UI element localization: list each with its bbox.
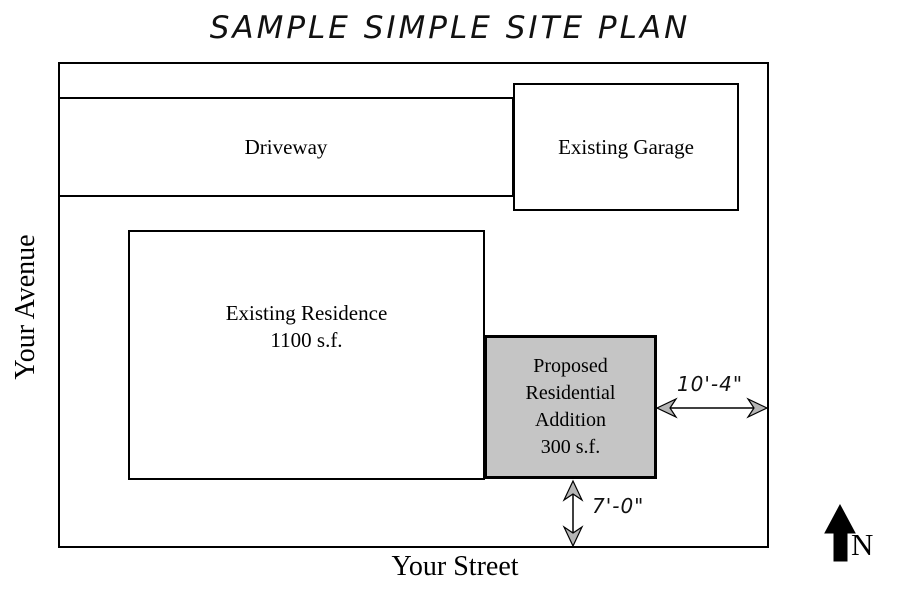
existing-garage-label: Existing Garage	[558, 134, 694, 161]
street-name-bottom: Your Street	[305, 551, 605, 587]
proposed-addition-label-line2: Residential	[526, 380, 616, 407]
dimension-right-setback-label: 10'-4"	[660, 372, 760, 396]
proposed-addition-label-line1: Proposed	[533, 353, 607, 380]
proposed-addition-box: Proposed Residential Addition 300 s.f.	[484, 335, 657, 479]
north-label: N	[851, 527, 873, 563]
existing-residence-label-line2: 1100 s.f.	[270, 327, 342, 354]
proposed-addition-label-line3: Addition	[535, 407, 606, 434]
proposed-addition-label-line4: 300 s.f.	[541, 434, 600, 461]
plan-title: SAMPLE SIMPLE SITE PLAN	[100, 10, 800, 52]
driveway-label: Driveway	[245, 134, 328, 161]
street-name-left: Your Avenue	[10, 207, 44, 407]
existing-residence-box: Existing Residence 1100 s.f.	[128, 230, 485, 480]
existing-garage-box: Existing Garage	[513, 83, 739, 211]
dimension-bottom-setback-label: 7'-0"	[592, 494, 672, 518]
driveway-box: Driveway	[58, 97, 514, 197]
existing-residence-label-line1: Existing Residence	[226, 300, 388, 327]
